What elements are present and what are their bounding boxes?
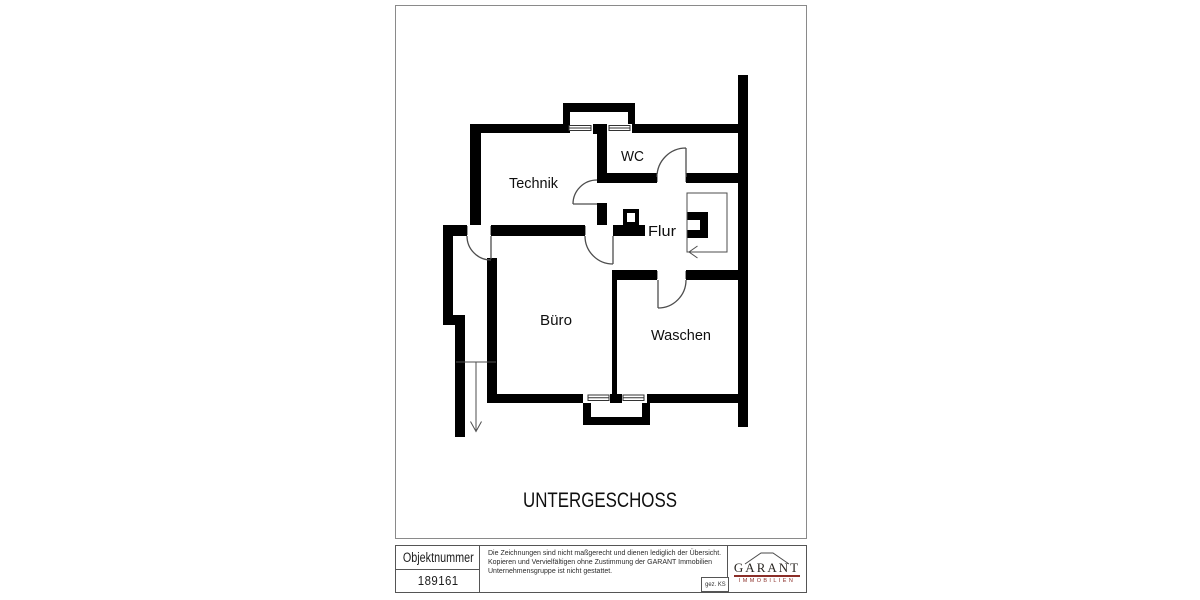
object-number-value: 189161 bbox=[418, 573, 459, 588]
right-stair-arrow bbox=[689, 246, 726, 258]
object-number-label-cell: Objektnummer bbox=[396, 546, 480, 570]
floor-title: UNTERGESCHOSS bbox=[523, 488, 677, 512]
signature-box: gez. KS bbox=[701, 577, 729, 592]
object-number-label: Objektnummer bbox=[403, 550, 474, 565]
logo-rule bbox=[734, 575, 800, 577]
floor-plan-drawing: Technik WC Flur Büro Waschen UNTERGESCHO… bbox=[0, 0, 1200, 600]
screenshot-page: Technik WC Flur Büro Waschen UNTERGESCHO… bbox=[0, 0, 1200, 600]
room-label-technik: Technik bbox=[509, 175, 558, 192]
object-number-cell: Objektnummer 189161 bbox=[396, 546, 480, 592]
room-label-waschen: Waschen bbox=[651, 327, 711, 344]
logo-subbrand: IMMOBILIEN bbox=[739, 578, 795, 584]
disclaimer-line-3: Unternehmensgruppe ist nicht gestattet. bbox=[488, 567, 721, 576]
room-label-flur: Flur bbox=[648, 223, 676, 240]
walls bbox=[443, 75, 748, 437]
disclaimer-cell: Die Zeichnungen sind nicht maßgerecht un… bbox=[480, 546, 728, 592]
room-label-wc: WC bbox=[621, 148, 644, 165]
shaft-square bbox=[623, 209, 639, 226]
title-block: Objektnummer 189161 Die Zeichnungen sind… bbox=[395, 545, 807, 593]
room-label-buero: Büro bbox=[540, 312, 572, 329]
logo-brand: GARANT bbox=[734, 560, 800, 576]
disclaimer-line-1: Die Zeichnungen sind nicht maßgerecht un… bbox=[488, 549, 721, 558]
disclaimer-line-2: Kopieren und Vervielfältigen ohne Zustim… bbox=[488, 558, 721, 567]
signature-text: gez. KS bbox=[705, 581, 725, 588]
wall-segments bbox=[443, 75, 748, 437]
disclaimer-text: Die Zeichnungen sind nicht maßgerecht un… bbox=[488, 549, 721, 576]
left-stair-arrow bbox=[471, 362, 482, 432]
object-number-value-cell: 189161 bbox=[396, 569, 480, 592]
logo-cell: GARANT IMMOBILIEN bbox=[728, 546, 806, 592]
